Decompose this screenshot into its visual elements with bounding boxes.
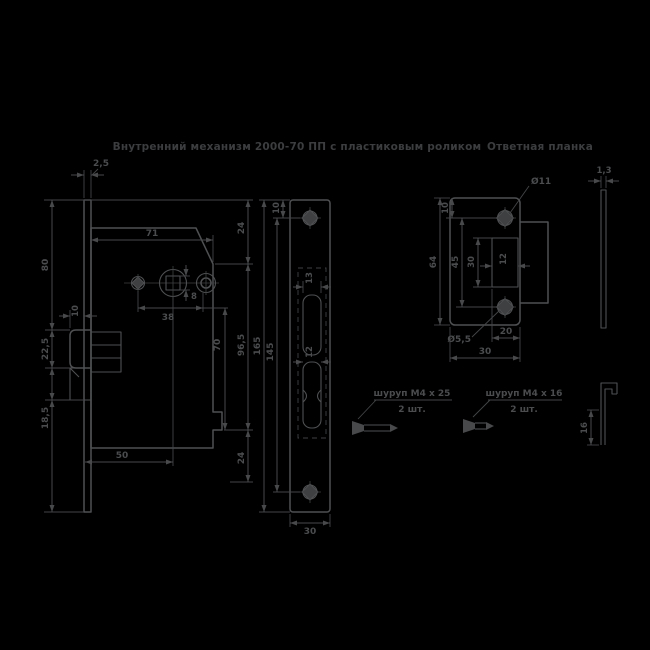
dim-spindle-square: 8 bbox=[180, 265, 197, 302]
screw-label: шуруп М4 х 16 bbox=[486, 389, 563, 399]
latch-slot bbox=[303, 295, 321, 355]
screw-head bbox=[463, 419, 475, 433]
dim-lower-slot-width: 12 bbox=[293, 346, 331, 362]
lower-slot bbox=[303, 362, 321, 428]
dim-label: 30 bbox=[467, 256, 477, 268]
left-dim-chain: 80 22,5 18,5 bbox=[41, 200, 84, 512]
dim-label: 80 bbox=[41, 259, 51, 272]
strike-flange bbox=[520, 222, 548, 303]
lock-technical-drawing: Внутренний механизм 2000-70 ПП с пластик… bbox=[0, 0, 650, 650]
callout-countersink: Ø11 bbox=[510, 176, 551, 213]
dim-label: Ø5,5 bbox=[447, 334, 471, 345]
dim-label: 10 bbox=[272, 202, 282, 214]
dim-label: 10 bbox=[441, 202, 451, 214]
dim-label: 2,5 bbox=[93, 159, 109, 169]
dim-label: 1,3 bbox=[596, 166, 611, 176]
screw-head bbox=[352, 421, 364, 435]
dim-faceplate-heights: 145 165 bbox=[253, 200, 300, 512]
lock-screw-figure: шуруп М4 х 25 2 шт. bbox=[352, 389, 452, 435]
dim-label: 10 bbox=[71, 305, 81, 317]
dim-label: 20 bbox=[500, 327, 513, 337]
dim-body-width: 71 bbox=[91, 229, 213, 262]
lip-profile-outer bbox=[601, 383, 617, 445]
dim-label: 24 bbox=[237, 452, 247, 465]
strike-screw-hole-top bbox=[494, 207, 516, 229]
dim-cutout-height: 30 bbox=[467, 238, 492, 287]
dim-label: 22,5 bbox=[41, 338, 51, 360]
screw-tip bbox=[390, 424, 398, 432]
dim-label: 38 bbox=[162, 313, 175, 323]
strike-title: Ответная планка bbox=[487, 141, 593, 153]
dim-latch-slot-width: 13 bbox=[293, 272, 331, 293]
dim-label: 30 bbox=[479, 347, 492, 357]
screw-label: шуруп М4 х 25 bbox=[374, 389, 451, 399]
dim-label: 8 bbox=[191, 292, 197, 302]
dim-strike-height: 64 bbox=[429, 198, 450, 325]
dim-label: 24 bbox=[237, 222, 247, 235]
screw-tip bbox=[486, 422, 494, 430]
fixing-hole bbox=[132, 274, 145, 292]
dim-label: 145 bbox=[266, 343, 276, 362]
dim-cutout-width: 12 bbox=[480, 253, 530, 266]
latch-bevel bbox=[70, 368, 79, 377]
dim-label: 13 bbox=[305, 272, 315, 284]
dim-label: 71 bbox=[146, 229, 159, 239]
dim-faceplate-width: 30 bbox=[290, 514, 330, 537]
lock-body bbox=[91, 228, 222, 448]
dim-label: 16 bbox=[580, 422, 590, 434]
slot-waist bbox=[303, 390, 321, 402]
dim-plate-thickness: 2,5 bbox=[71, 159, 109, 198]
dim-label: 12 bbox=[499, 253, 509, 265]
faceplate-screw-hole-bottom bbox=[299, 481, 321, 503]
dim-label: 165 bbox=[253, 337, 263, 356]
strike-side-profile bbox=[601, 190, 606, 328]
callout-screw-hole: Ø5,5 bbox=[447, 309, 501, 345]
dim-label: Ø11 bbox=[531, 176, 551, 187]
dim-label: 50 bbox=[116, 451, 129, 461]
lock-side-view: 2,5 71 80 22,5 18,5 10 bbox=[41, 159, 253, 512]
main-title: Внутренний механизм 2000-70 ПП с пластик… bbox=[113, 141, 482, 153]
dim-label: 18,5 bbox=[41, 407, 51, 429]
dim-label: 30 bbox=[304, 527, 317, 537]
latch-roller bbox=[70, 330, 91, 368]
screw-qty: 2 шт. bbox=[398, 405, 426, 415]
faceplate-screw-hole-top bbox=[299, 207, 321, 229]
dim-label: 12 bbox=[305, 346, 315, 358]
latch-lower bbox=[70, 368, 91, 400]
latch-housing bbox=[91, 332, 121, 372]
dim-label: 96,5 bbox=[237, 334, 247, 356]
faceplate-front-view: 13 12 10 145 165 30 bbox=[253, 200, 331, 537]
dim-backset: 50 bbox=[85, 297, 173, 466]
strike-plate-side-view: 1,3 bbox=[588, 166, 619, 328]
strike-screw-hole-bottom bbox=[494, 296, 516, 318]
dim-label: 70 bbox=[213, 339, 223, 352]
faceplate-edge bbox=[84, 200, 91, 512]
strike-lip-side-view: 16 bbox=[580, 383, 617, 445]
screw-qty: 2 шт. bbox=[510, 405, 538, 415]
dim-label: 45 bbox=[451, 256, 461, 269]
dim-top-hole-offset: 10 bbox=[272, 200, 283, 218]
dim-hole-spacing: 38 bbox=[138, 291, 228, 323]
dim-label: 64 bbox=[429, 256, 439, 269]
strike-plate-front-view: 12 Ø11 Ø5,5 10 45 64 bbox=[429, 176, 551, 362]
strike-screw-figure: шуруп М4 х 16 2 шт. bbox=[463, 389, 562, 433]
lip-profile-inner bbox=[605, 389, 617, 445]
